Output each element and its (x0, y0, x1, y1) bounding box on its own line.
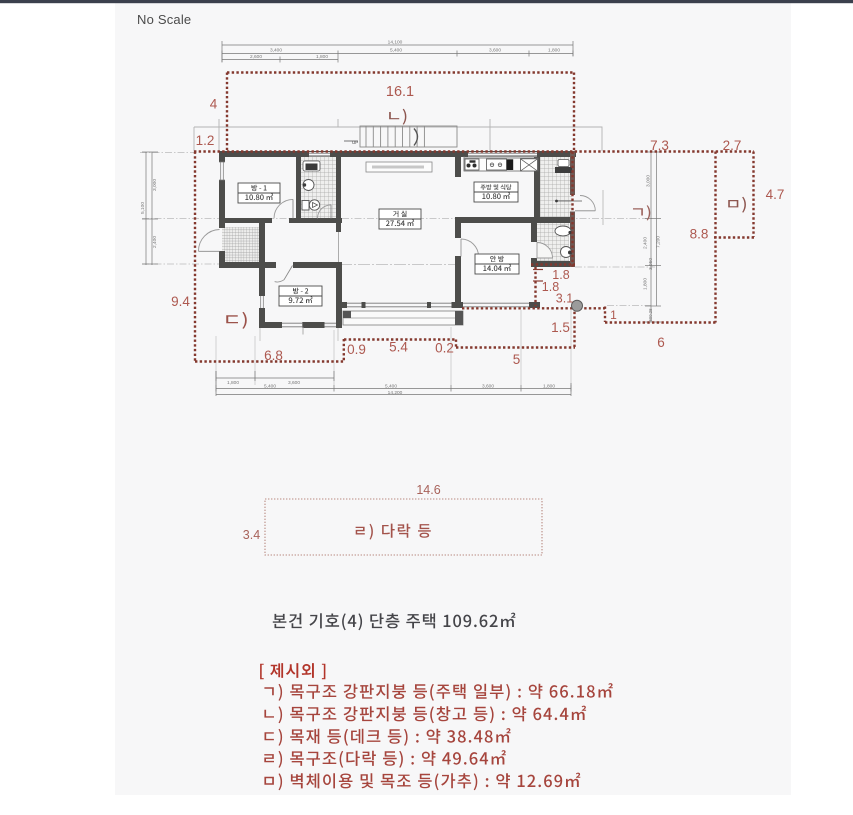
svg-text:14,100: 14,100 (388, 40, 403, 46)
svg-text:1,800: 1,800 (227, 380, 239, 386)
svg-text:No Scale: No Scale (137, 12, 191, 27)
svg-text:3,600: 3,600 (288, 380, 300, 386)
svg-text:4.7: 4.7 (766, 187, 785, 202)
svg-text:1,800: 1,800 (316, 54, 328, 60)
svg-text:1: 1 (610, 308, 617, 322)
svg-text:5.4: 5.4 (389, 340, 408, 355)
svg-text:7.3: 7.3 (650, 138, 669, 153)
svg-text:1,800: 1,800 (643, 278, 649, 290)
svg-text:500.28: 500.28 (648, 308, 653, 321)
svg-text:2.7: 2.7 (723, 138, 742, 153)
svg-text:5: 5 (513, 352, 521, 367)
svg-text:3.1: 3.1 (556, 292, 573, 306)
svg-text:3,600: 3,600 (489, 48, 501, 54)
svg-text:8.8: 8.8 (690, 227, 709, 242)
svg-text:1,800: 1,800 (548, 48, 560, 54)
svg-text:16.1: 16.1 (386, 84, 414, 100)
svg-text:5,400: 5,400 (390, 48, 402, 54)
svg-text:6: 6 (657, 335, 665, 350)
svg-text:6.8: 6.8 (264, 348, 283, 363)
svg-text:1,800: 1,800 (543, 383, 555, 389)
svg-text:0.9: 0.9 (347, 342, 366, 357)
svg-text:3,000: 3,000 (152, 179, 158, 191)
svg-text:3,400: 3,400 (270, 48, 282, 54)
svg-text:3,000: 3,000 (646, 175, 652, 187)
svg-text:7,200: 7,200 (656, 236, 662, 248)
svg-text:1.5: 1.5 (551, 320, 570, 335)
svg-text:3.4: 3.4 (243, 528, 260, 542)
svg-text:2,400: 2,400 (152, 236, 158, 248)
svg-text:2,400: 2,400 (643, 237, 649, 249)
svg-text:14.6: 14.6 (416, 483, 440, 497)
svg-text:0.2: 0.2 (435, 341, 454, 356)
svg-text:5,400: 5,400 (264, 383, 276, 389)
svg-text:1.2: 1.2 (196, 133, 215, 148)
svg-text:14,200: 14,200 (388, 390, 403, 396)
svg-text:2,600: 2,600 (250, 54, 262, 60)
svg-text:3,950: 3,950 (648, 258, 654, 270)
svg-text:5,400: 5,400 (385, 383, 397, 389)
svg-text:5,100: 5,100 (140, 202, 146, 214)
svg-text:3,600: 3,600 (482, 383, 494, 389)
svg-text:4: 4 (210, 97, 218, 112)
svg-text:9.4: 9.4 (171, 294, 190, 309)
